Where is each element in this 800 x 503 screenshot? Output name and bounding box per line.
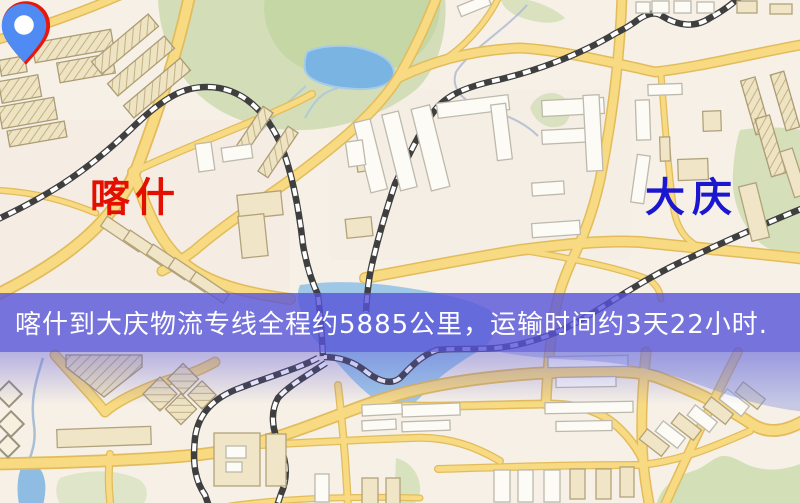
destination-pin-icon[interactable] (0, 0, 48, 66)
map-viewport[interactable]: 喀什到大庆物流专线全程约5885公里，运输时间约3天22小时. 喀什 大庆 (0, 0, 800, 503)
destination-label: 大庆 (645, 178, 739, 218)
destination-pin-hole (14, 15, 34, 35)
route-info-banner: 喀什到大庆物流专线全程约5885公里，运输时间约3天22小时. (0, 293, 800, 352)
origin-label: 喀什 (90, 178, 180, 218)
route-info-text: 喀什到大庆物流专线全程约5885公里，运输时间约3天22小时. (15, 304, 768, 341)
map-canvas (0, 0, 800, 503)
